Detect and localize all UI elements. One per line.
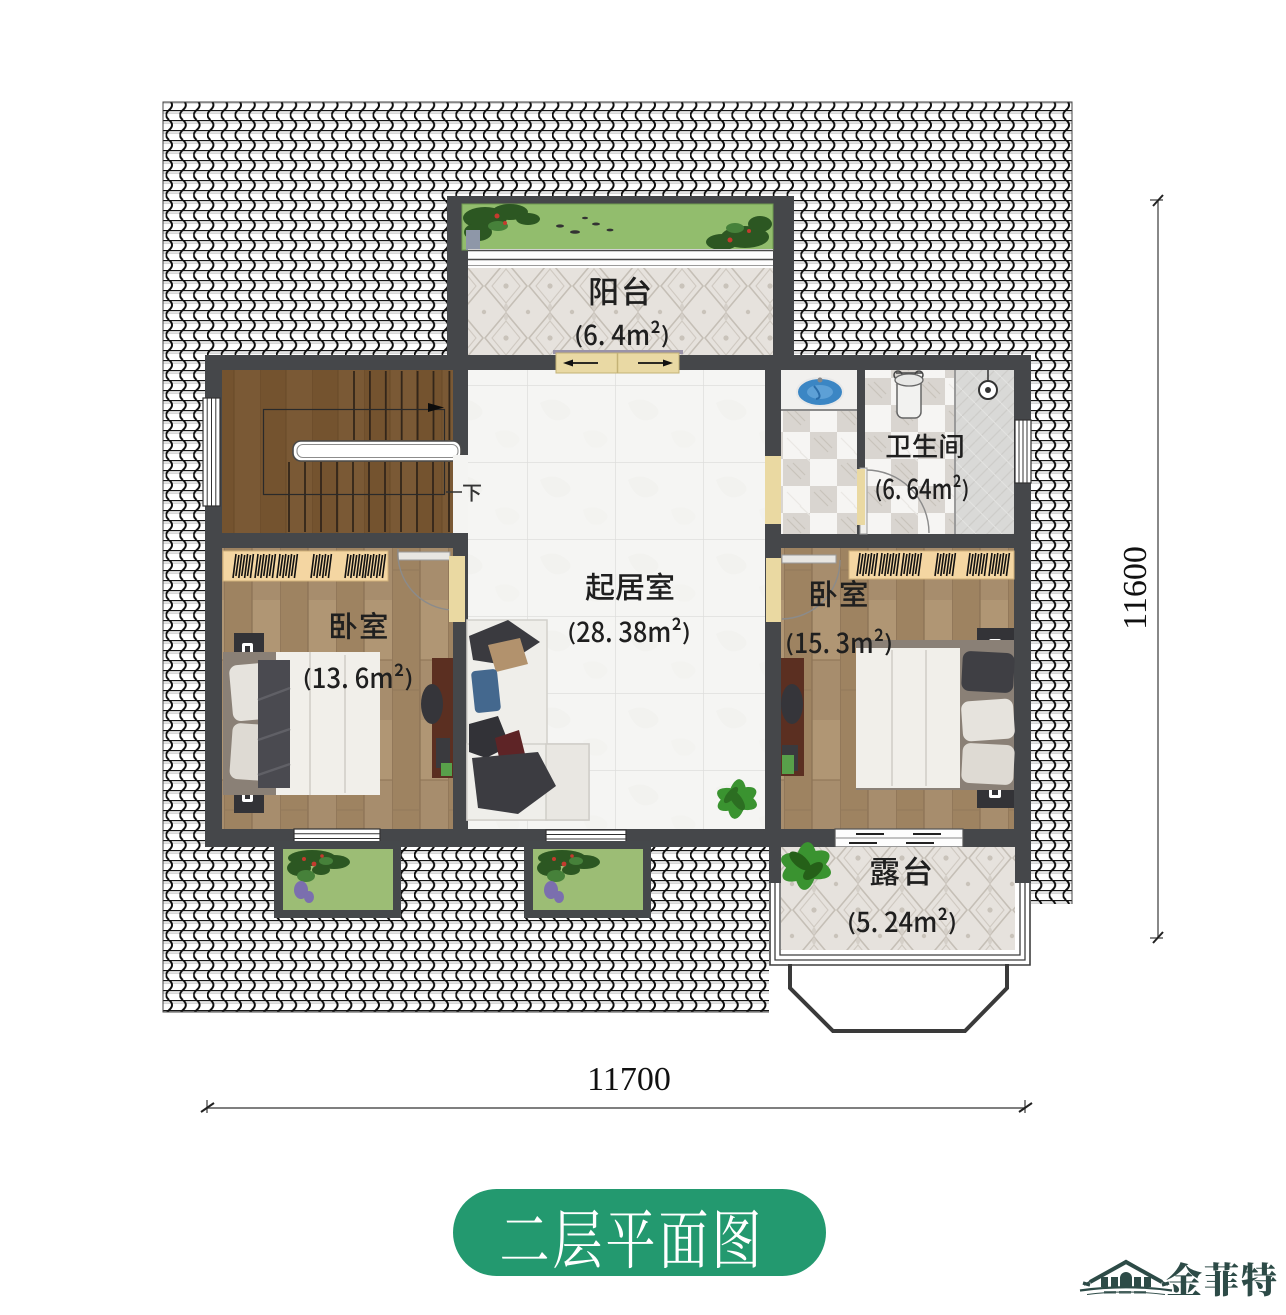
svg-text:11600: 11600 — [1117, 546, 1154, 630]
svg-text:11700: 11700 — [587, 1061, 671, 1098]
